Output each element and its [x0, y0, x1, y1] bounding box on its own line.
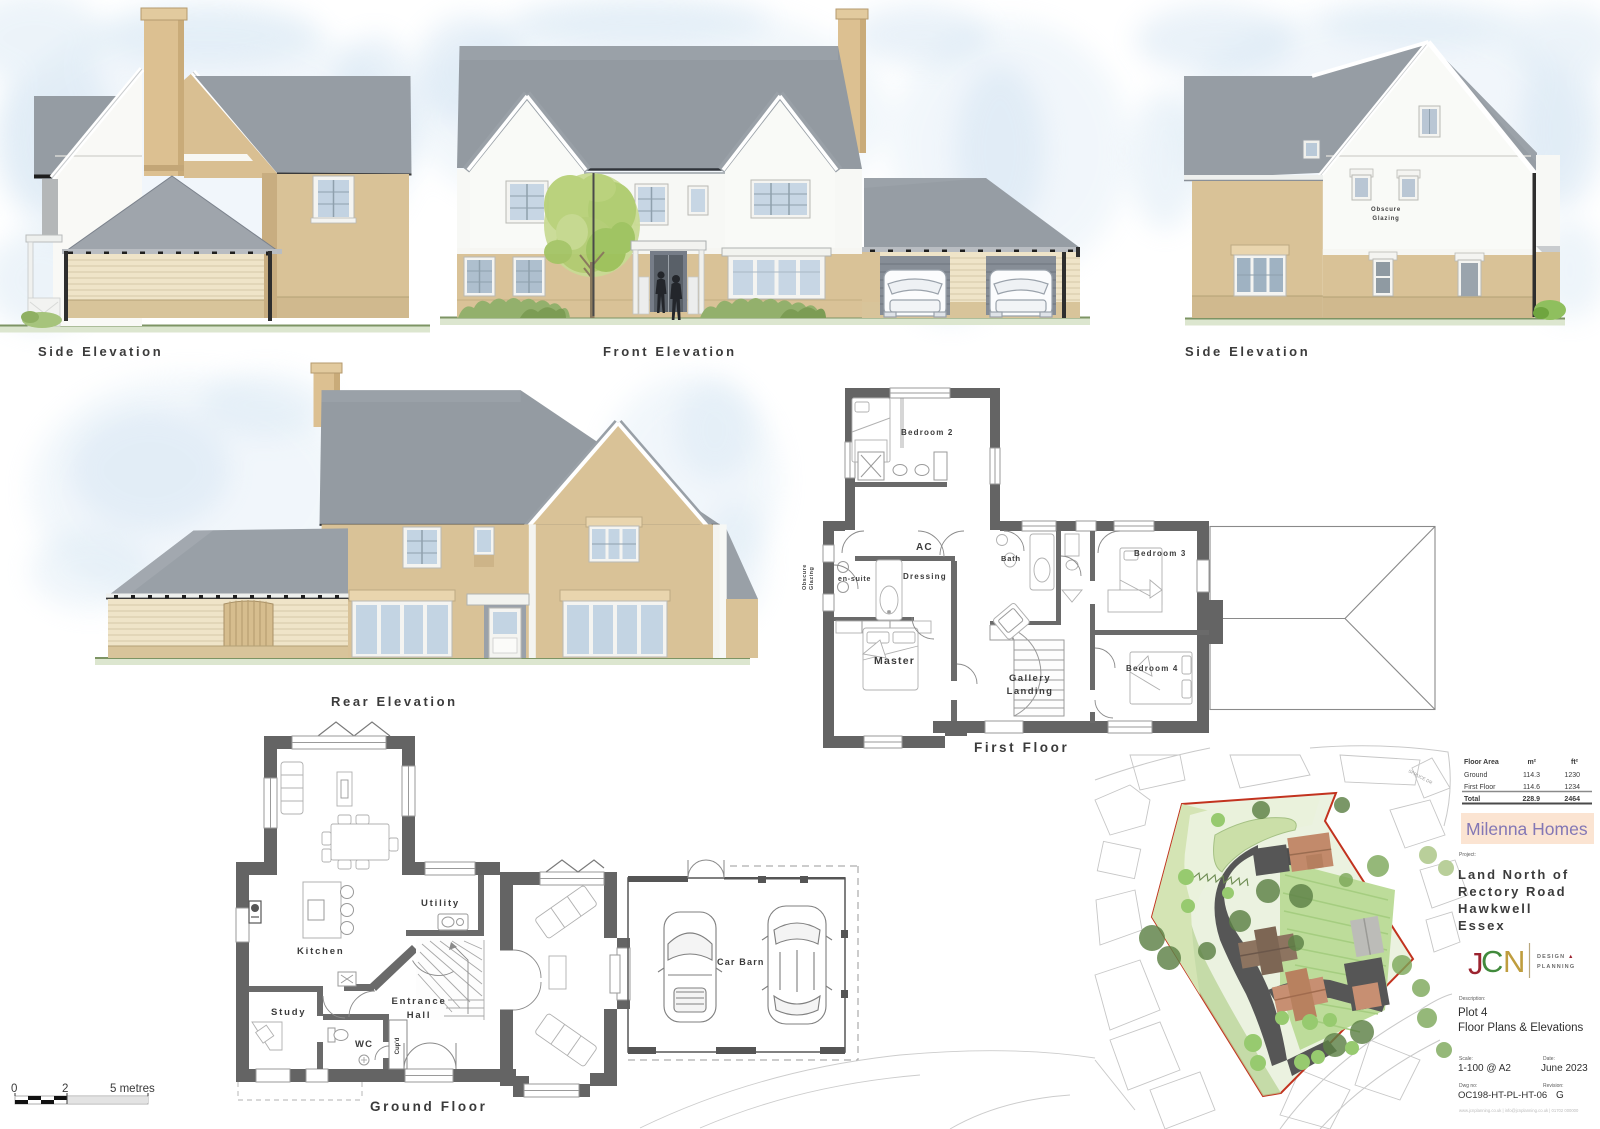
svg-text:Utility: Utility — [421, 898, 460, 909]
svg-text:Ground Floor: Ground Floor — [370, 1099, 487, 1114]
svg-text:Description:: Description: — [1459, 996, 1485, 1002]
svg-text:June 2023: June 2023 — [1541, 1063, 1588, 1074]
svg-text:AC: AC — [916, 542, 933, 553]
svg-text:Kitchen: Kitchen — [297, 946, 344, 957]
svg-text:Scale:: Scale: — [1459, 1056, 1473, 1062]
svg-text:Study: Study — [271, 1007, 306, 1018]
svg-text:Landing: Landing — [1007, 686, 1054, 697]
svg-text:First Floor: First Floor — [974, 740, 1069, 755]
svg-text:Essex: Essex — [1458, 918, 1506, 933]
svg-text:Glazing: Glazing — [1372, 216, 1399, 222]
svg-text:Bath: Bath — [1001, 554, 1021, 563]
svg-text:114.3: 114.3 — [1523, 772, 1540, 779]
svg-text:1-100 @ A2: 1-100 @ A2 — [1458, 1063, 1511, 1074]
svg-text:2464: 2464 — [1564, 796, 1580, 803]
svg-text:228.9: 228.9 — [1522, 796, 1540, 803]
svg-text:ft²: ft² — [1571, 759, 1579, 766]
svg-text:Revision:: Revision: — [1543, 1083, 1564, 1089]
svg-text:Rear Elevation: Rear Elevation — [331, 694, 458, 709]
svg-text:First Floor: First Floor — [1464, 784, 1496, 791]
svg-text:Dwg no:: Dwg no: — [1459, 1083, 1477, 1089]
svg-text:Date:: Date: — [1543, 1056, 1555, 1062]
svg-text:C: C — [1481, 944, 1503, 979]
svg-text:Floor Plans & Elevations: Floor Plans & Elevations — [1458, 1022, 1584, 1034]
svg-text:PLANNING: PLANNING — [1537, 964, 1575, 970]
svg-text:OC198-HT-PL-HT-06: OC198-HT-PL-HT-06 — [1458, 1090, 1547, 1101]
svg-text:Floor Area: Floor Area — [1464, 759, 1499, 766]
svg-text:Side Elevation: Side Elevation — [1185, 344, 1310, 359]
svg-text:Side Elevation: Side Elevation — [38, 344, 163, 359]
svg-text:1234: 1234 — [1564, 784, 1580, 791]
svg-text:Obscure: Obscure — [1371, 207, 1401, 213]
svg-text:Plot 4: Plot 4 — [1458, 1007, 1488, 1019]
svg-text:Car Barn: Car Barn — [717, 957, 765, 967]
svg-text:114.6: 114.6 — [1523, 784, 1540, 791]
svg-text:Hawkwell: Hawkwell — [1458, 901, 1533, 916]
svg-text:en-suite: en-suite — [838, 576, 871, 583]
svg-text:Total: Total — [1464, 796, 1480, 803]
svg-text:Bedroom 3: Bedroom 3 — [1134, 549, 1187, 558]
svg-text:1230: 1230 — [1564, 772, 1580, 779]
svg-text:G: G — [1556, 1090, 1564, 1101]
svg-text:0: 0 — [11, 1083, 17, 1095]
svg-text:m²: m² — [1527, 759, 1536, 766]
svg-text:Master: Master — [874, 655, 915, 667]
svg-text:Hall: Hall — [407, 1010, 432, 1021]
svg-text:www.jcnplanning.co.uk | info: www.jcnplanning.co.uk | info@jcnplanning… — [1459, 1108, 1579, 1113]
svg-text:Bedroom 4: Bedroom 4 — [1126, 664, 1179, 673]
svg-text:Dressing: Dressing — [903, 572, 947, 581]
svg-text:Glazing: Glazing — [809, 567, 815, 590]
svg-text:Project:: Project: — [1459, 852, 1476, 858]
svg-text:WC: WC — [355, 1039, 373, 1050]
svg-text:Bedroom 2: Bedroom 2 — [901, 428, 954, 437]
svg-text:N: N — [1503, 944, 1525, 979]
svg-text:Ground: Ground — [1464, 772, 1487, 779]
svg-text:Land North of: Land North of — [1458, 867, 1569, 882]
svg-text:Front Elevation: Front Elevation — [603, 344, 737, 359]
svg-text:Obscure: Obscure — [802, 564, 808, 590]
svg-text:DESIGN ▲: DESIGN ▲ — [1537, 954, 1575, 960]
svg-text:Rectory Road: Rectory Road — [1458, 884, 1567, 899]
svg-text:Gallery: Gallery — [1009, 673, 1051, 684]
svg-text:Entrance: Entrance — [391, 996, 446, 1007]
svg-text:Cup'd: Cup'd — [395, 1037, 401, 1054]
svg-text:Milenna Homes: Milenna Homes — [1466, 819, 1588, 839]
